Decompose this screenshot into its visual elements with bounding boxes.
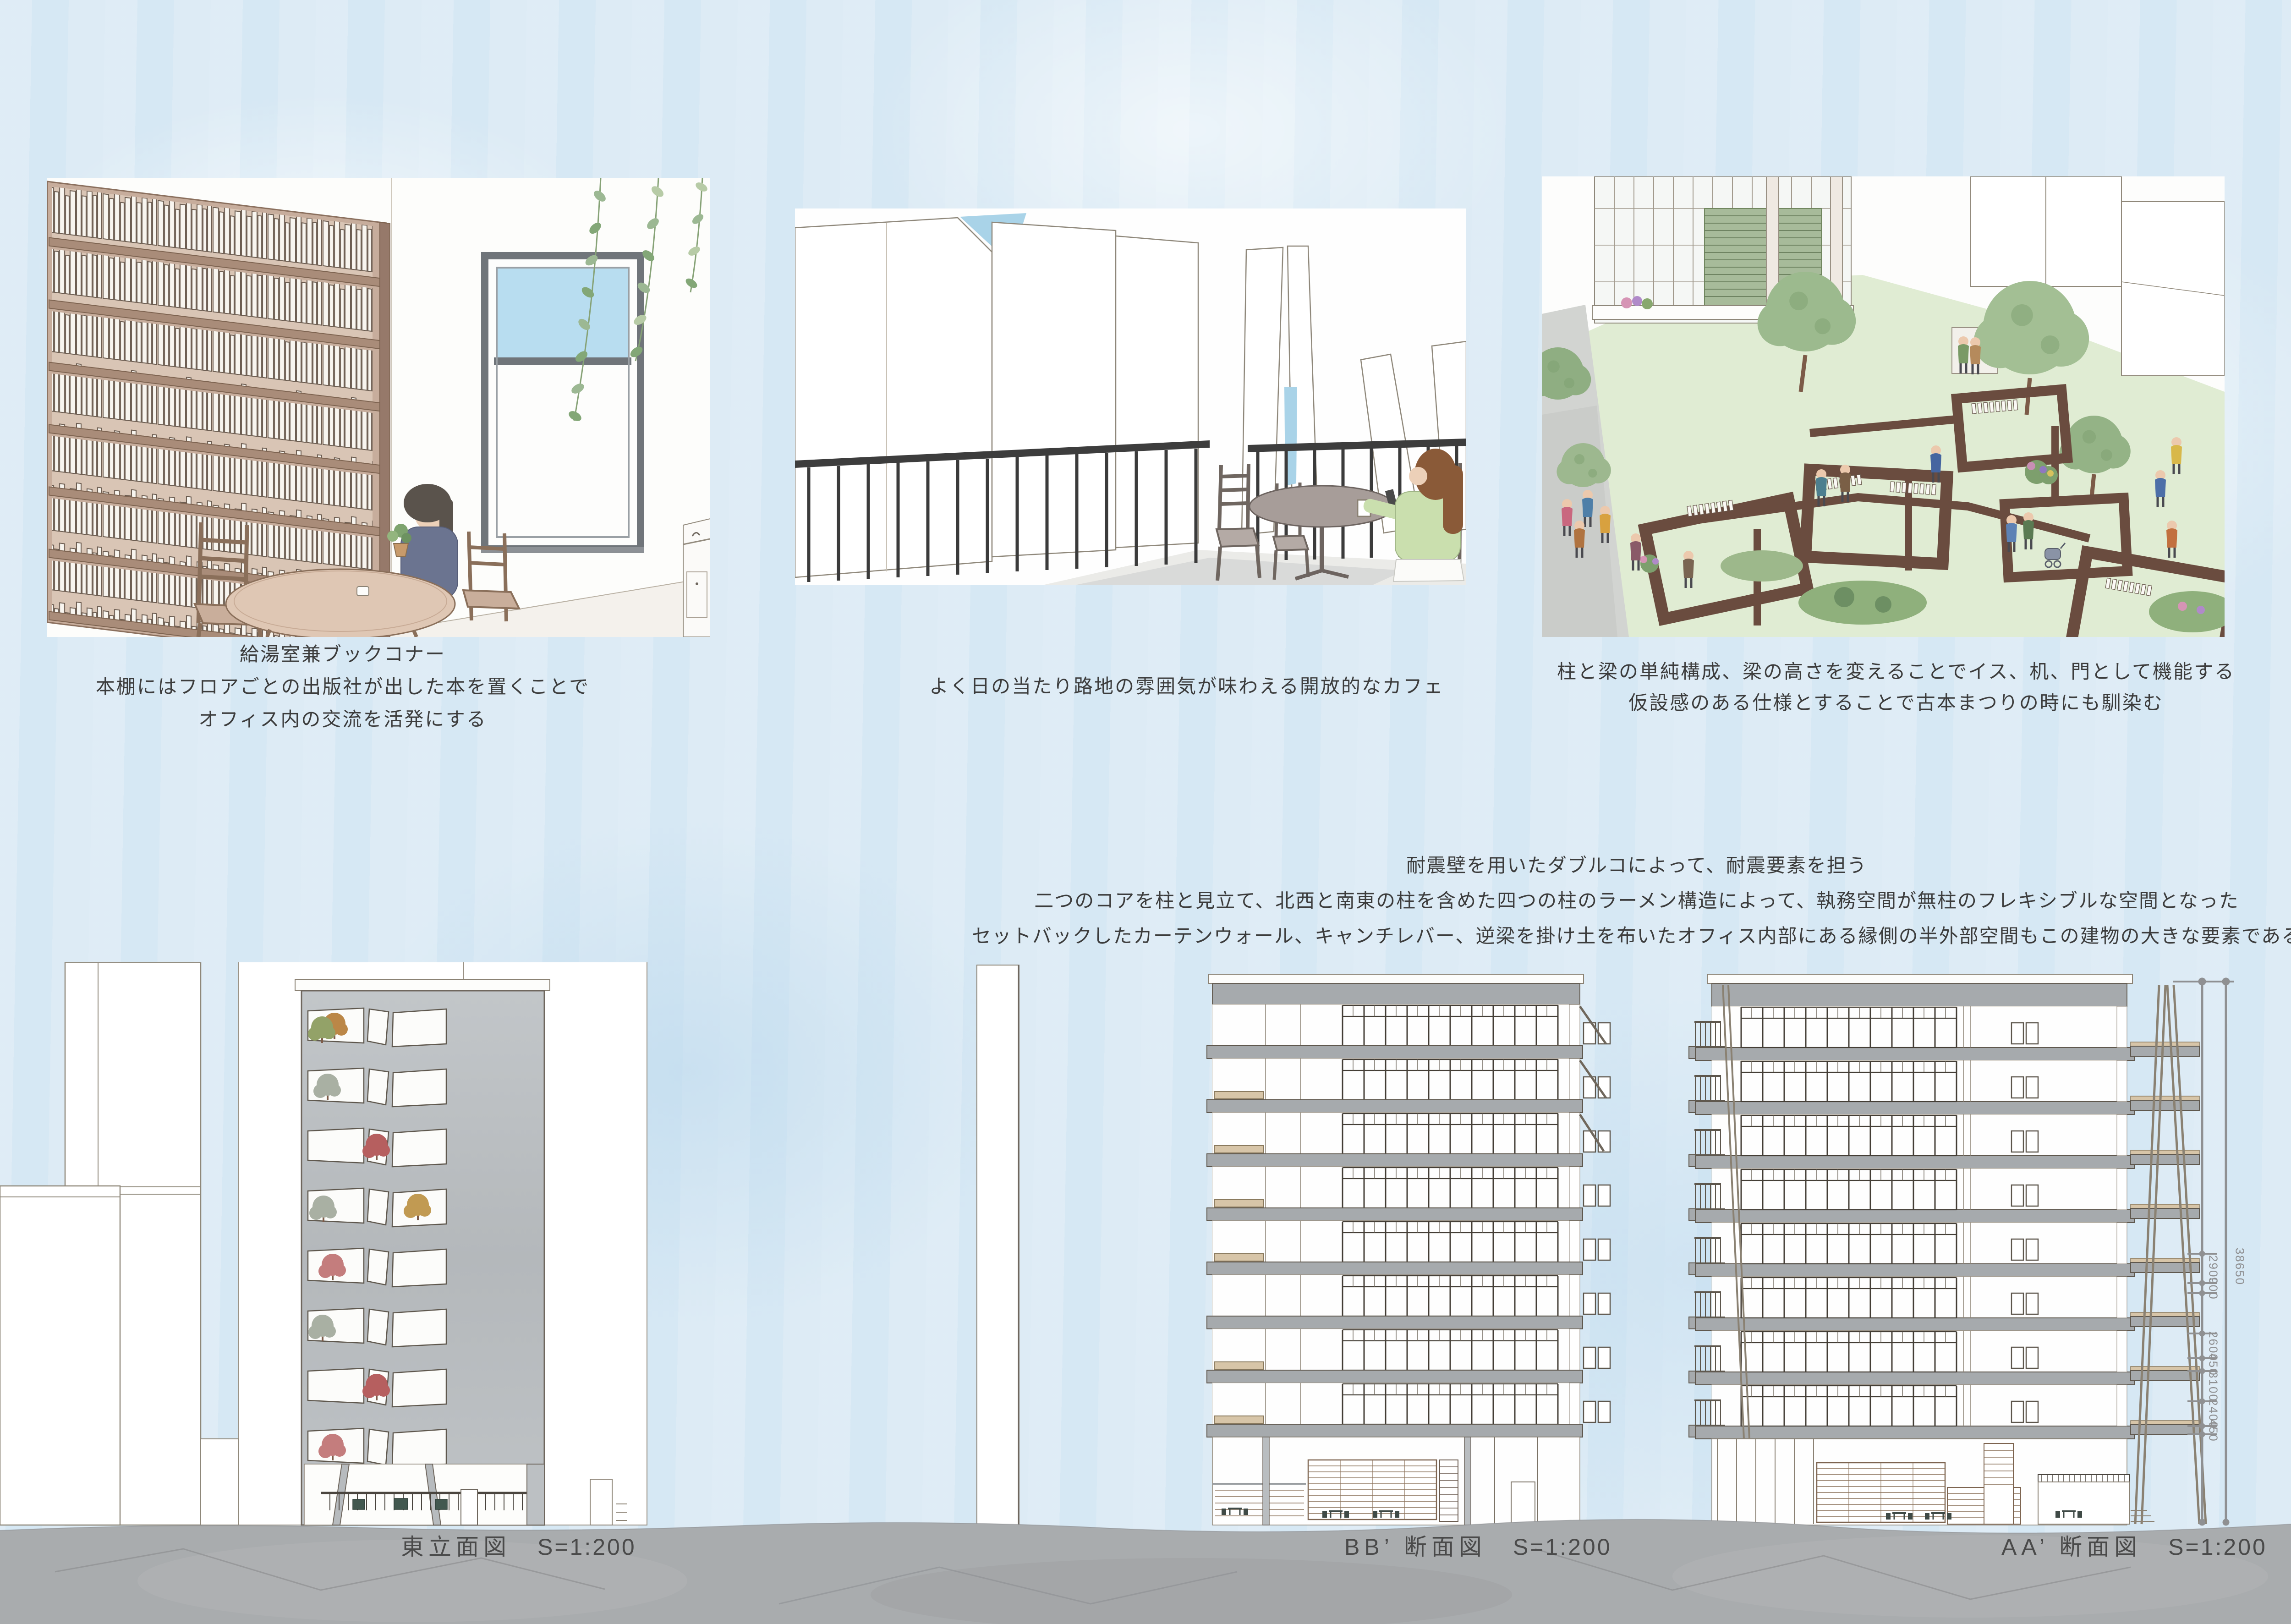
structure-notes: 耐震壁を用いたダブルコによって、耐震要素を担う 二つのコアを柱と見立て、北西と南… [972,848,2291,954]
caption-line: 柱と梁の単純構成、梁の高さを変えることでイス、机、門として機能する [1557,656,2235,687]
dimension-segment: 900 [2206,1277,2220,1300]
garden-frames-illustration [1542,176,2225,637]
drawing-title: BB’ 断面図 [1344,1534,1486,1560]
dimension-segment: 3100 [2206,1372,2220,1402]
alley-cafe-illustration [795,208,1466,585]
drawing-scale: S=1:200 [1513,1534,1612,1560]
label-bb-section: BB’ 断面図S=1:200 [1344,1529,1612,1562]
east-elevation-drawing [0,962,647,1525]
dimension-total: 38650 [2233,1248,2247,1285]
render-book-corner [47,178,710,637]
window [481,256,644,552]
structure-note-line: セットバックしたカーテンウォール、キャンチレバー、逆梁を掛け土を布いたオフィス内… [972,918,2291,954]
technical-drawings-layer [0,962,2291,1624]
render-garden-frames [1542,176,2225,637]
label-east-elevation: 東立面図S=1:200 [401,1529,636,1562]
bb-section-drawing [977,965,1610,1525]
presentation-board: 給湯室兼ブックコナー 本棚にはフロアごとの出版社が出した本を置くことで オフィス… [0,0,2291,1624]
structure-note-line: 耐震壁を用いたダブルコによって、耐震要素を担う [972,848,2291,883]
structure-note-line: 二つのコアを柱と見立て、北西と南東の柱を含めた四つの柱のラーメン構造によって、執… [972,883,2291,918]
ground-strip [0,1520,2291,1624]
caption-line: 仮設感のある仕様とすることで古本まつりの時にも馴染む [1557,687,2235,719]
drawing-scale: S=1:200 [537,1534,636,1560]
round-table [226,569,455,637]
kitchen-counter [683,519,710,637]
aa-ground-floor [1712,1439,2154,1525]
caption-line: よく日の当たり路地の雰囲気が味わえる開放的なカフェ [929,670,1444,702]
caption-alley-cafe: よく日の当たり路地の雰囲気が味わえる開放的なカフェ [929,670,1444,702]
dimension-segment: 450 [2206,1419,2220,1442]
caption-line: 本棚にはフロアごとの出版社が出した本を置くことで [96,670,590,703]
caption-line: 給湯室兼ブックコナー [96,638,590,670]
drawing-title: AA’ 断面図 [2001,1534,2142,1560]
bb-right-railings [1584,1023,1610,1422]
book-corner-illustration [47,178,710,637]
drawing-title: 東立面図 [401,1534,511,1560]
label-aa-section: AA’ 断面図S=1:200 [2001,1529,2267,1562]
caption-line: オフィス内の交流を活発にする [96,703,590,735]
dimension-lines [2173,978,2234,1525]
caption-garden-frames: 柱と梁の単純構成、梁の高さを変えることでイス、机、門として機能する 仮設感のある… [1557,656,2235,719]
drawing-scale: S=1:200 [2168,1534,2267,1560]
aa-section-drawing [1689,974,2206,1525]
render-alley-cafe [795,208,1466,585]
caption-book-corner: 給湯室兼ブックコナー 本棚にはフロアごとの出版社が出した本を置くことで オフィス… [96,638,590,735]
drawings-canvas [0,962,2291,1624]
bb-ground-floor [1212,1437,1580,1525]
